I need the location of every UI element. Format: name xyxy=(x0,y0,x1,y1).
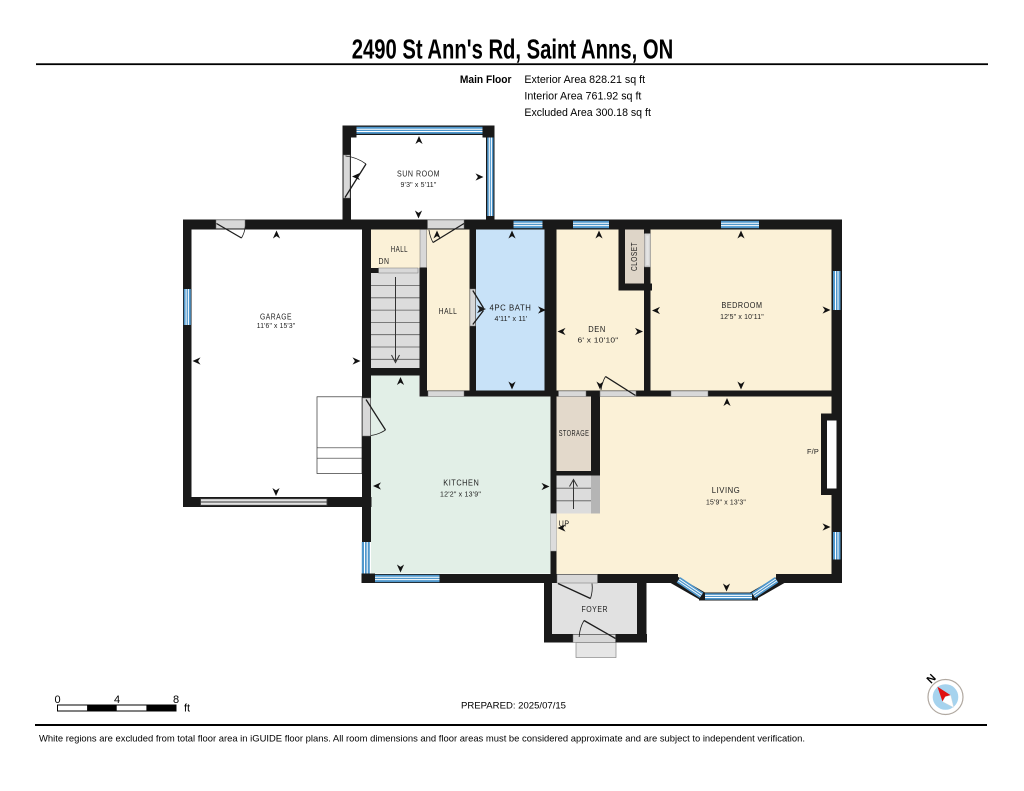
svg-text:Exterior Area 828.21 sq ft: Exterior Area 828.21 sq ft xyxy=(524,74,646,86)
svg-text:CLOSET: CLOSET xyxy=(629,242,639,271)
svg-text:12'5" x 10'11": 12'5" x 10'11" xyxy=(720,312,764,321)
svg-text:KITCHEN: KITCHEN xyxy=(443,478,479,488)
svg-text:ft: ft xyxy=(184,703,190,715)
svg-text:6' x 10'10": 6' x 10'10" xyxy=(578,336,619,345)
svg-text:LIVING: LIVING xyxy=(712,485,741,495)
svg-text:HALL: HALL xyxy=(391,244,408,254)
svg-text:Interior Area 761.92 sq ft: Interior Area 761.92 sq ft xyxy=(524,91,642,103)
svg-text:0: 0 xyxy=(54,694,60,706)
svg-text:DEN: DEN xyxy=(588,324,606,334)
svg-text:4PC BATH: 4PC BATH xyxy=(490,303,532,313)
svg-text:15'9" x 13'3": 15'9" x 13'3" xyxy=(706,498,746,507)
svg-text:HALL: HALL xyxy=(439,306,458,316)
svg-text:9'3" x 5'11": 9'3" x 5'11" xyxy=(401,180,437,189)
svg-text:DN: DN xyxy=(379,256,390,266)
svg-text:12'2" x 13'9": 12'2" x 13'9" xyxy=(440,490,481,499)
svg-text:11'6" x 15'3": 11'6" x 15'3" xyxy=(257,321,296,330)
svg-text:F/P: F/P xyxy=(807,447,819,456)
svg-text:8: 8 xyxy=(173,694,179,706)
svg-text:GARAGE: GARAGE xyxy=(260,312,292,322)
svg-text:STORAGE: STORAGE xyxy=(559,428,590,438)
svg-text:4'11" x 11': 4'11" x 11' xyxy=(495,314,528,323)
svg-text:2490 St Ann's Rd, Saint Anns,: 2490 St Ann's Rd, Saint Anns, ON xyxy=(352,34,674,65)
svg-text:UP: UP xyxy=(559,519,570,529)
svg-text:White regions are excluded fro: White regions are excluded from total fl… xyxy=(39,734,805,744)
svg-text:PREPARED: 2025/07/15: PREPARED: 2025/07/15 xyxy=(461,701,566,711)
svg-text:FOYER: FOYER xyxy=(582,604,609,614)
svg-text:4: 4 xyxy=(114,694,120,706)
svg-text:Excluded Area 300.18 sq ft: Excluded Area 300.18 sq ft xyxy=(524,107,651,119)
svg-text:Main Floor: Main Floor xyxy=(460,74,512,86)
svg-text:BEDROOM: BEDROOM xyxy=(722,300,763,310)
svg-text:SUN ROOM: SUN ROOM xyxy=(397,169,440,179)
